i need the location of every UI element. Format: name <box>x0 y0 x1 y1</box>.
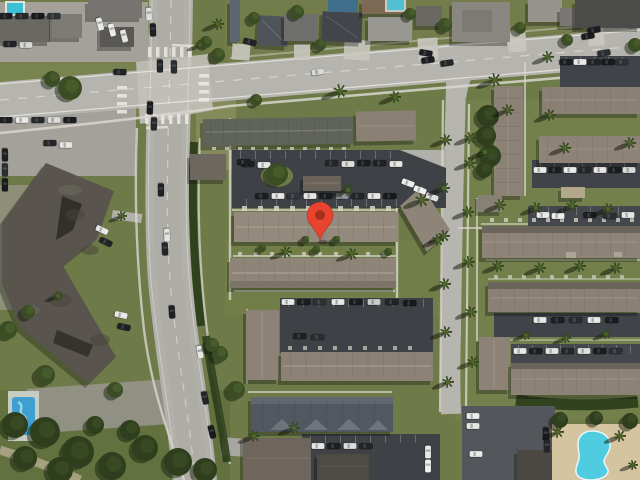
parked-or-driving-car <box>383 193 397 200</box>
parked-or-driving-car <box>545 348 559 355</box>
parked-or-driving-car <box>608 167 622 174</box>
parked-or-driving-car <box>271 193 285 200</box>
parked-or-driving-car <box>593 348 607 355</box>
parked-or-driving-car <box>609 348 623 355</box>
parked-or-driving-car <box>425 459 432 473</box>
parked-or-driving-car <box>327 443 341 450</box>
parked-or-driving-car <box>373 160 387 167</box>
parked-or-driving-car <box>615 59 629 66</box>
parked-or-driving-car <box>349 299 363 306</box>
parked-or-driving-car <box>47 117 61 124</box>
parked-or-driving-car <box>161 241 168 255</box>
parked-or-driving-car <box>331 299 345 306</box>
parked-or-driving-car <box>293 333 307 340</box>
parked-or-driving-car <box>466 413 480 420</box>
parked-or-driving-car <box>319 193 333 200</box>
parked-or-driving-car <box>31 117 45 124</box>
parked-or-driving-car <box>577 348 591 355</box>
parked-or-driving-car <box>19 42 33 49</box>
parked-or-driving-car <box>43 140 57 147</box>
satellite-map-view[interactable] <box>0 0 640 480</box>
satellite-imagery-canvas[interactable] <box>0 0 640 480</box>
parked-or-driving-car <box>146 100 153 114</box>
parked-or-driving-car <box>341 161 355 168</box>
parked-or-driving-car <box>47 13 61 20</box>
parked-or-driving-car <box>149 22 156 36</box>
parked-or-driving-car <box>343 443 357 450</box>
parked-or-driving-car <box>359 443 373 450</box>
parked-or-driving-car <box>157 59 164 73</box>
parked-or-driving-car <box>622 167 636 174</box>
parked-or-driving-car <box>469 451 483 458</box>
parked-or-driving-car <box>587 317 601 324</box>
parked-or-driving-car <box>605 317 619 324</box>
parked-or-driving-car <box>513 348 527 355</box>
parked-or-driving-car <box>367 193 381 200</box>
parked-or-driving-car <box>593 167 607 174</box>
parked-or-driving-car <box>0 13 13 20</box>
parked-or-driving-car <box>533 317 547 324</box>
parked-or-driving-car <box>351 193 365 200</box>
parked-or-driving-car <box>621 212 635 219</box>
parked-or-driving-car <box>389 161 403 168</box>
parked-or-driving-car <box>112 69 126 76</box>
parked-or-driving-car <box>63 117 77 124</box>
parked-or-driving-car <box>466 423 480 430</box>
parked-or-driving-car <box>573 59 587 66</box>
parked-or-driving-car <box>171 60 178 74</box>
parked-or-driving-car <box>578 167 592 174</box>
parked-or-driving-car <box>313 299 327 306</box>
parked-or-driving-car <box>403 300 417 307</box>
parked-or-driving-car <box>559 59 573 66</box>
parked-or-driving-car <box>385 299 399 306</box>
parked-or-driving-car <box>255 193 269 200</box>
parked-or-driving-car <box>287 193 301 200</box>
parked-or-driving-car <box>163 227 170 241</box>
parked-or-driving-car <box>2 178 9 192</box>
parked-or-driving-car <box>367 299 381 306</box>
parked-or-driving-car <box>15 13 29 20</box>
parked-or-driving-car <box>601 59 615 66</box>
parked-or-driving-car <box>357 160 371 167</box>
parked-or-driving-car <box>150 116 157 130</box>
parked-or-driving-car <box>533 167 547 174</box>
parked-or-driving-car <box>529 348 543 355</box>
parked-or-driving-car <box>536 212 550 219</box>
parked-or-driving-car <box>31 13 45 20</box>
parked-or-driving-car <box>551 213 565 220</box>
parked-or-driving-car <box>158 183 165 197</box>
parked-or-driving-car <box>297 299 311 306</box>
parked-or-driving-car <box>587 59 601 66</box>
parked-or-driving-car <box>2 163 9 177</box>
parked-or-driving-car <box>237 159 251 166</box>
parked-or-driving-car <box>168 304 175 318</box>
parked-or-driving-car <box>548 167 562 174</box>
parked-or-driving-car <box>303 193 317 200</box>
parked-or-driving-car <box>603 213 617 220</box>
parked-or-driving-car <box>3 41 17 48</box>
parked-or-driving-car <box>563 167 577 174</box>
parked-or-driving-car <box>2 148 9 162</box>
parked-or-driving-car <box>59 142 73 149</box>
parked-or-driving-car <box>425 445 432 459</box>
parked-or-driving-car <box>281 299 295 306</box>
parked-or-driving-car <box>145 6 152 20</box>
parked-or-driving-car <box>551 317 565 324</box>
parked-or-driving-car <box>311 334 325 341</box>
parked-or-driving-car <box>311 443 325 450</box>
parked-or-driving-car <box>0 117 13 124</box>
parked-or-driving-car <box>544 439 551 453</box>
parked-or-driving-car <box>569 317 583 324</box>
parked-or-driving-car <box>325 160 339 167</box>
parked-or-driving-car <box>15 117 29 124</box>
parked-or-driving-car <box>561 348 575 355</box>
